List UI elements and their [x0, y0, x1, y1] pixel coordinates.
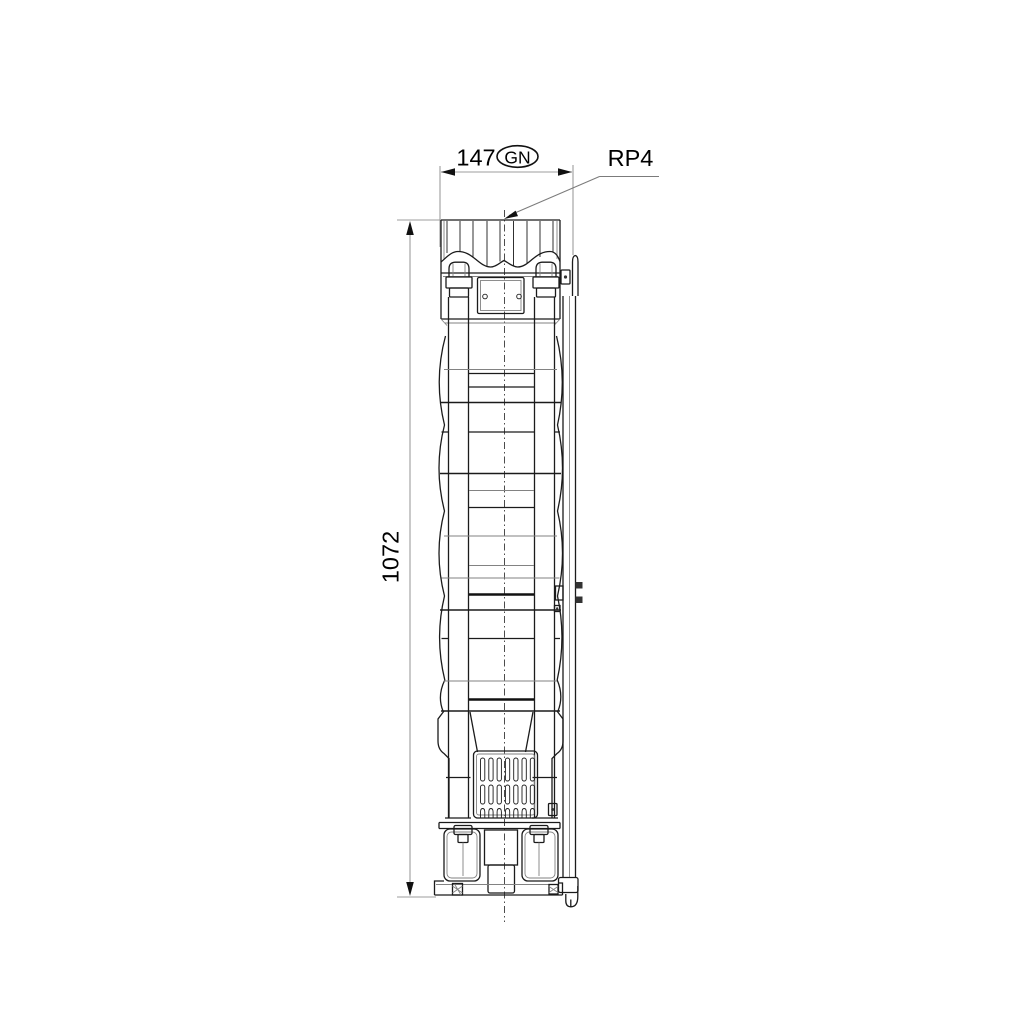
casing-thin-lines	[441, 277, 560, 326]
cable-plug-stem-right	[534, 835, 544, 843]
strainer-slots-row1	[481, 758, 535, 781]
riser-outline	[441, 220, 560, 262]
chamber-bulge-left	[439, 336, 446, 711]
cable-guard-top-screw	[564, 275, 567, 278]
check-valve-casing	[441, 259, 560, 326]
bottom-screw-right	[549, 885, 558, 895]
tie-rod-straps	[449, 297, 555, 818]
cable-pocket-right	[522, 826, 558, 882]
thread-tag-text: GN	[504, 148, 530, 168]
nameplate-screw-left	[483, 294, 488, 299]
stage-lines-thin	[442, 370, 560, 682]
stage-joint-lines	[440, 403, 561, 712]
cable-guard-hook	[559, 878, 579, 907]
suction-cone-left	[438, 711, 449, 818]
height-dimension: 1072	[378, 220, 443, 897]
height-arrow-bottom	[406, 882, 414, 896]
shaft-coupling-lower	[488, 865, 515, 893]
motor-stool	[435, 823, 563, 896]
nameplate	[478, 278, 525, 314]
pump-drawing	[435, 210, 583, 922]
valve-wave-edge	[441, 252, 560, 268]
riser-ribs	[447, 221, 553, 266]
cable-plug-stem-left	[458, 835, 468, 843]
connection-leader-arrow	[504, 211, 518, 219]
stage-lines-medium	[442, 374, 561, 639]
suction-cone-right	[552, 711, 563, 818]
tie-rod-nut-right	[533, 262, 559, 297]
width-arrow-left	[441, 168, 455, 176]
width-dimension-text: 147	[456, 145, 495, 171]
shaft-coupling-housing	[485, 830, 518, 865]
casing-outline	[441, 259, 560, 319]
suction-interconnector	[438, 711, 563, 818]
tie-rod-nut-left	[446, 262, 472, 297]
height-extension-lines	[397, 220, 442, 897]
suction-side-clip	[549, 804, 558, 816]
technical-drawing-svg: 147 GN RP4 1072	[0, 0, 1024, 1024]
clamp-tab-lower	[576, 597, 583, 604]
suction-strainer	[474, 751, 538, 818]
connection-leader-line	[509, 177, 659, 216]
cable-guard	[555, 256, 583, 907]
riser-pipe-section	[441, 220, 560, 267]
strainer-slots-row2	[481, 785, 535, 804]
bottom-screw-left	[453, 884, 463, 896]
height-dimension-text: 1072	[378, 531, 404, 583]
strainer-slots-row3	[481, 809, 535, 818]
cable-plug-cap-left	[454, 826, 472, 835]
cable-pocket-left	[444, 826, 480, 882]
drawing-canvas: 147 GN RP4 1072	[0, 0, 1024, 1024]
connection-label-text: RP4	[608, 145, 654, 171]
cable-guard-top-clip	[573, 256, 579, 297]
height-arrow-top	[406, 221, 414, 235]
width-arrow-right	[558, 168, 572, 176]
suction-inner-taper	[470, 712, 533, 752]
chamber-bulge-right	[557, 336, 563, 711]
cable-guard-mid-clamp	[555, 582, 583, 612]
clamp-tab-upper	[576, 582, 583, 589]
cable-plug-cap-right	[530, 826, 548, 835]
chamber-stack	[439, 297, 563, 818]
